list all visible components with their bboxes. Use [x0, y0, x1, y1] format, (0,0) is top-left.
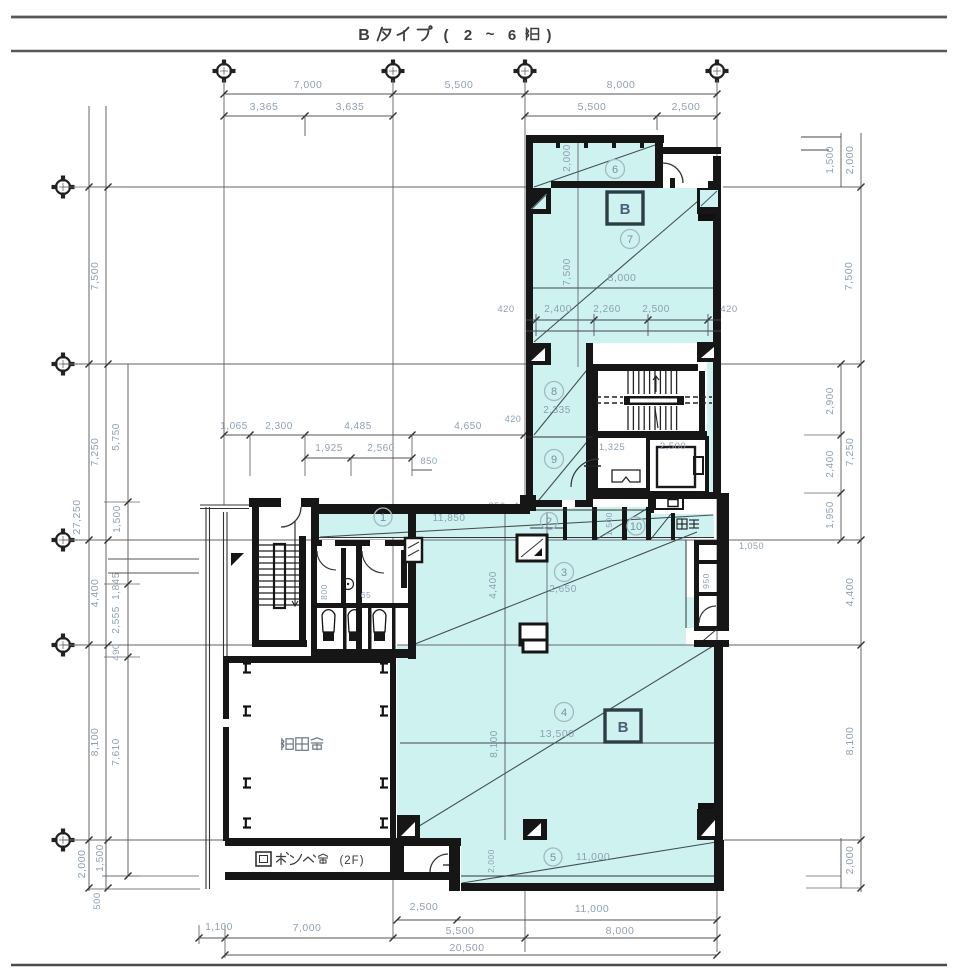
svg-text:4: 4: [561, 707, 567, 719]
svg-text:1,500: 1,500: [95, 844, 106, 872]
svg-text:7,250: 7,250: [89, 438, 101, 467]
svg-text:1,065: 1,065: [220, 421, 248, 432]
svg-text:4,400: 4,400: [488, 571, 499, 599]
svg-text:5,500: 5,500: [445, 79, 474, 91]
svg-text:4,650: 4,650: [454, 421, 482, 432]
svg-text:2,500: 2,500: [672, 101, 701, 113]
svg-text:6: 6: [612, 164, 618, 176]
svg-text:2,555: 2,555: [111, 606, 122, 634]
svg-text:1,050: 1,050: [739, 541, 764, 551]
svg-text:2,335: 2,335: [543, 405, 571, 416]
svg-text:5,500: 5,500: [578, 101, 607, 113]
svg-text:B: B: [358, 27, 370, 44]
svg-text:2,000: 2,000: [844, 146, 856, 175]
svg-text:8,000: 8,000: [606, 925, 635, 937]
svg-text:9: 9: [551, 454, 557, 466]
svg-text:8,100: 8,100: [89, 728, 101, 757]
svg-text:2,000: 2,000: [76, 850, 88, 879]
svg-text:7: 7: [627, 234, 633, 246]
svg-text:420: 420: [497, 304, 514, 315]
svg-text:800: 800: [319, 584, 329, 600]
svg-text:2,300: 2,300: [265, 421, 293, 432]
svg-text:8,000: 8,000: [608, 272, 637, 284]
svg-text:1,500: 1,500: [112, 505, 123, 533]
svg-text:4,400: 4,400: [89, 579, 101, 608]
svg-text:11,000: 11,000: [576, 851, 610, 863]
svg-text:B: B: [620, 201, 631, 218]
svg-text:6: 6: [508, 27, 516, 44]
svg-text:2,000: 2,000: [486, 849, 496, 873]
svg-text:2,900: 2,900: [825, 387, 836, 415]
svg-text:2,400: 2,400: [544, 304, 572, 315]
svg-text:7,250: 7,250: [844, 438, 856, 467]
svg-text:3: 3: [561, 567, 567, 579]
svg-text:10: 10: [630, 521, 642, 533]
svg-text:2,400: 2,400: [825, 450, 836, 478]
svg-text:5,500: 5,500: [446, 925, 475, 937]
svg-text:2,650: 2,650: [549, 584, 577, 595]
svg-text:1,845: 1,845: [111, 572, 122, 600]
svg-text:2,260: 2,260: [593, 304, 621, 315]
svg-text:2: 2: [546, 516, 552, 528]
svg-text:20,500: 20,500: [449, 942, 484, 954]
svg-text:): ): [547, 27, 552, 44]
svg-text:1,950: 1,950: [825, 501, 836, 529]
svg-text:1: 1: [380, 512, 386, 524]
svg-text:2,500: 2,500: [642, 304, 670, 315]
svg-text:(: (: [444, 27, 449, 44]
svg-text:8: 8: [551, 386, 557, 398]
svg-text:2,500: 2,500: [660, 441, 686, 452]
svg-text:850: 850: [420, 456, 437, 467]
svg-text:B: B: [618, 719, 629, 736]
svg-text:2: 2: [464, 27, 472, 44]
svg-text:65: 65: [361, 590, 371, 600]
svg-text:7,500: 7,500: [89, 262, 101, 291]
svg-text:1,500: 1,500: [825, 146, 836, 174]
svg-text:5: 5: [550, 852, 556, 864]
svg-text:490: 490: [111, 643, 122, 660]
svg-text:2,000: 2,000: [562, 144, 573, 172]
svg-text:1,100: 1,100: [205, 922, 233, 933]
svg-text:3,635: 3,635: [336, 101, 365, 113]
svg-text:8,100: 8,100: [844, 727, 856, 756]
svg-text:2,000: 2,000: [844, 846, 856, 875]
svg-text:2,500: 2,500: [410, 901, 439, 913]
svg-text:13,500: 13,500: [539, 728, 574, 740]
svg-text:500: 500: [92, 892, 103, 909]
svg-text:420: 420: [720, 304, 737, 315]
svg-text:(2F): (2F): [339, 855, 364, 867]
svg-text:8,100: 8,100: [489, 730, 500, 758]
svg-text:4,485: 4,485: [344, 421, 372, 432]
svg-text:1,925: 1,925: [315, 443, 343, 454]
svg-text:3,365: 3,365: [250, 101, 279, 113]
svg-text:4,400: 4,400: [844, 578, 856, 607]
svg-text:420: 420: [505, 414, 522, 424]
svg-text:5,750: 5,750: [111, 423, 122, 451]
svg-text:950: 950: [701, 573, 711, 589]
svg-text:7,000: 7,000: [293, 922, 322, 934]
svg-text:1,500: 1,500: [604, 512, 614, 536]
svg-text:2,560: 2,560: [367, 443, 395, 454]
svg-text:8,000: 8,000: [607, 79, 636, 91]
svg-text:7,610: 7,610: [111, 738, 122, 766]
svg-text:7,500: 7,500: [562, 258, 573, 286]
svg-text:11,850: 11,850: [433, 513, 466, 524]
svg-text:~: ~: [486, 26, 495, 43]
svg-text:27,250: 27,250: [71, 499, 83, 534]
svg-text:7,000: 7,000: [294, 79, 323, 91]
svg-text:11,000: 11,000: [575, 903, 609, 915]
svg-text:7,500: 7,500: [843, 262, 855, 291]
svg-text:1,325: 1,325: [599, 442, 625, 453]
